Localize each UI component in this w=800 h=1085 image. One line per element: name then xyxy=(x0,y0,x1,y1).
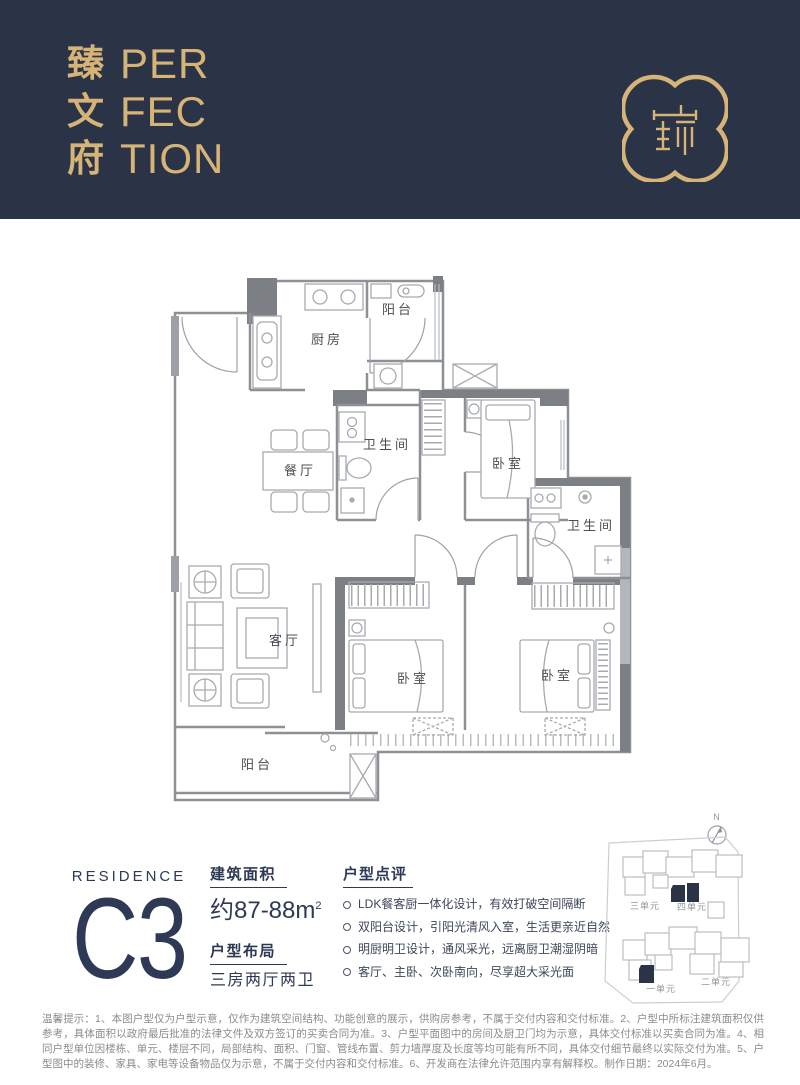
brand-english: PER FEC TION xyxy=(120,40,224,183)
review-list: LDK餐客厨一体化设计，有效打破空间隔断 双阳台设计，引阳光清风入室，生活更亲近… xyxy=(343,897,613,980)
review-title-rule xyxy=(343,887,413,888)
brand-cn-char: 臻 xyxy=(67,40,104,88)
review-column: 户型点评 LDK餐客厨一体化设计，有效打破空间隔断 双阳台设计，引阳光清风入室，… xyxy=(343,866,613,987)
area-value: 约87-88m2 xyxy=(210,893,335,924)
outer-wall xyxy=(175,281,630,800)
review-point: 双阳台设计，引阳光清风入室，生活更亲近自然 xyxy=(343,920,613,935)
quatrefoil-seal-icon xyxy=(622,74,728,182)
highlighted-unit-south xyxy=(639,965,654,983)
room-label-bedroom-1: 卧室 xyxy=(492,456,524,471)
brand-en-line: TION xyxy=(120,135,224,183)
header-band: 臻 文 府 PER FEC TION xyxy=(0,0,800,219)
room-label-living: 客厅 xyxy=(269,633,301,648)
unit-label-3: 三单元 xyxy=(630,900,660,911)
room-label-bath-2: 卫生间 xyxy=(567,518,615,533)
brochure-page: 臻 文 府 PER FEC TION xyxy=(0,0,800,1085)
disclaimer-text: 温馨提示：1、本图户型仅为户型示意，仅作为建筑空间结构、功能创意的展示，供购房参… xyxy=(42,1012,764,1072)
room-label-balcony-bottom: 阳台 xyxy=(241,757,273,772)
unit-label-2: 二单元 xyxy=(701,976,731,987)
svg-text:N: N xyxy=(713,812,721,822)
unit-label-4: 四单元 xyxy=(677,901,707,912)
brand-cn-char: 文 xyxy=(67,88,104,136)
highlighted-units-north xyxy=(671,883,699,902)
brand-cn-char: 府 xyxy=(67,135,104,183)
review-point: LDK餐客厨一体化设计，有效打破空间隔断 xyxy=(343,897,613,912)
review-title: 户型点评 xyxy=(343,866,613,884)
floorplan-drawing: 阳台 厨房 卫生间 餐厅 卧室 卫生间 客厅 卧室 卧室 阳台 xyxy=(165,272,645,812)
review-point: 明厨明卫设计，通风采光，远离厨卫潮湿阴暗 xyxy=(343,942,613,957)
room-label-kitchen: 厨房 xyxy=(311,332,343,347)
unit-label-1: 一单元 xyxy=(646,983,676,994)
brand-en-line: PER xyxy=(120,40,224,88)
area-value-text: 约87-88m xyxy=(210,897,315,924)
siteplan-map: N 三单元 四单元 xyxy=(595,805,795,1015)
layout-title-rule xyxy=(210,964,287,965)
room-label-bath-1: 卫生间 xyxy=(363,437,411,452)
spec-column: 建筑面积 约87-88m2 户型布局 三房两厅两卫 xyxy=(210,866,335,991)
brand-lockup: 臻 文 府 PER FEC TION xyxy=(67,40,224,183)
review-point-text: 客厅、主卧、次卧南向，尽享超大采光面 xyxy=(358,965,574,980)
room-label-bedroom-2: 卧室 xyxy=(397,671,429,686)
bullet-circle-icon xyxy=(343,946,351,954)
room-label-balcony-top: 阳台 xyxy=(382,302,414,317)
area-title: 建筑面积 xyxy=(210,866,335,884)
review-point-text: 明厨明卫设计，通风采光，远离厨卫潮湿阴暗 xyxy=(358,942,598,957)
area-value-sup: 2 xyxy=(315,900,321,912)
unit-code: C3 xyxy=(72,887,186,991)
brand-en-line: FEC xyxy=(120,88,224,136)
compass-icon: N xyxy=(708,812,726,844)
area-title-rule xyxy=(210,887,287,888)
bullet-circle-icon xyxy=(343,923,351,931)
layout-title: 户型布局 xyxy=(210,943,335,961)
bullet-circle-icon xyxy=(343,901,351,909)
interior-walls xyxy=(175,281,630,793)
room-label-bedroom-3: 卧室 xyxy=(541,668,573,683)
layout-value: 三房两厅两卫 xyxy=(210,971,335,991)
review-point-text: LDK餐客厨一体化设计，有效打破空间隔断 xyxy=(358,897,585,912)
bullet-circle-icon xyxy=(343,968,351,976)
review-point: 客厅、主卧、次卧南向，尽享超大采光面 xyxy=(343,965,613,980)
review-point-text: 双阳台设计，引阳光清风入室，生活更亲近自然 xyxy=(358,920,610,935)
room-label-dining: 餐厅 xyxy=(284,463,316,478)
brand-chinese: 臻 文 府 xyxy=(67,40,104,183)
